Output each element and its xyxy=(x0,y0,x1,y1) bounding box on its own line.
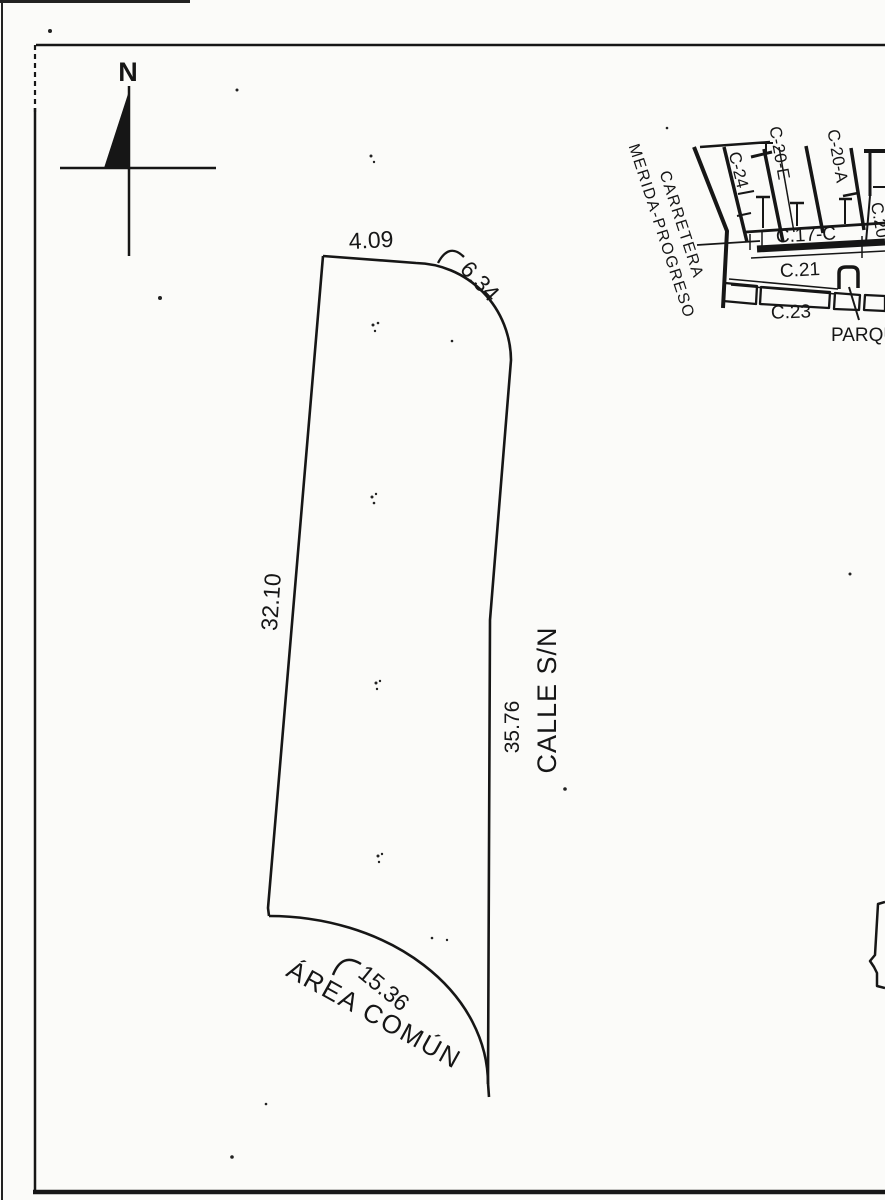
street-label-calle-sn: CALLE S/N xyxy=(533,626,561,773)
north-label: N xyxy=(118,58,138,86)
scan-edge-artifacts xyxy=(0,0,190,1200)
north-arrow-icon xyxy=(60,86,216,256)
page-border xyxy=(33,45,885,1192)
dimension-top: 4.09 xyxy=(348,227,394,253)
dimension-right: 35.76 xyxy=(502,701,524,754)
street-label-c17c: C.17-C xyxy=(775,224,836,247)
dimension-arc-icons xyxy=(333,251,464,975)
street-label-c23: C.23 xyxy=(771,302,812,323)
street-label-c21: C.21 xyxy=(779,260,820,282)
scanned-plan-sheet: N 4.09 6.34 32.10 35.76 CALLE S/N 15.36 … xyxy=(0,0,885,1200)
plan-linework xyxy=(0,0,885,1200)
dimension-left: 32.10 xyxy=(257,572,285,631)
right-edge-clipped-sketch xyxy=(870,902,885,988)
park-label: PARQUE xyxy=(831,326,885,346)
